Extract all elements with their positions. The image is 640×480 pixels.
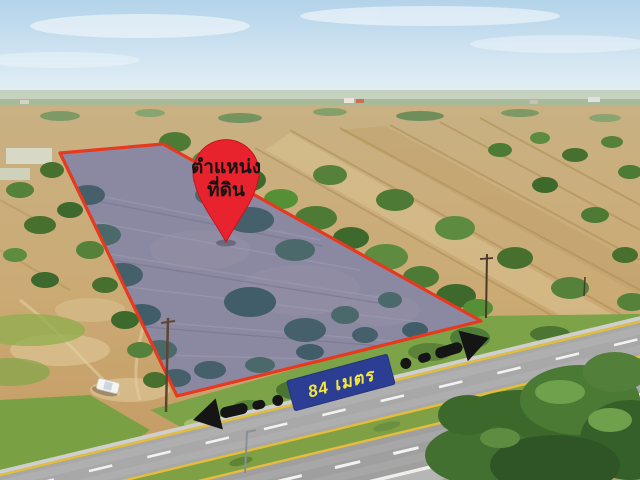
pin-label-line1: ตำแหน่ง: [191, 157, 261, 178]
pin-label-line2: ที่ดิน: [207, 176, 245, 201]
utility-pole-small: [584, 277, 585, 296]
aerial-photo: 84 เมตร ตำแหน่ง ที่ดิน: [0, 0, 640, 480]
